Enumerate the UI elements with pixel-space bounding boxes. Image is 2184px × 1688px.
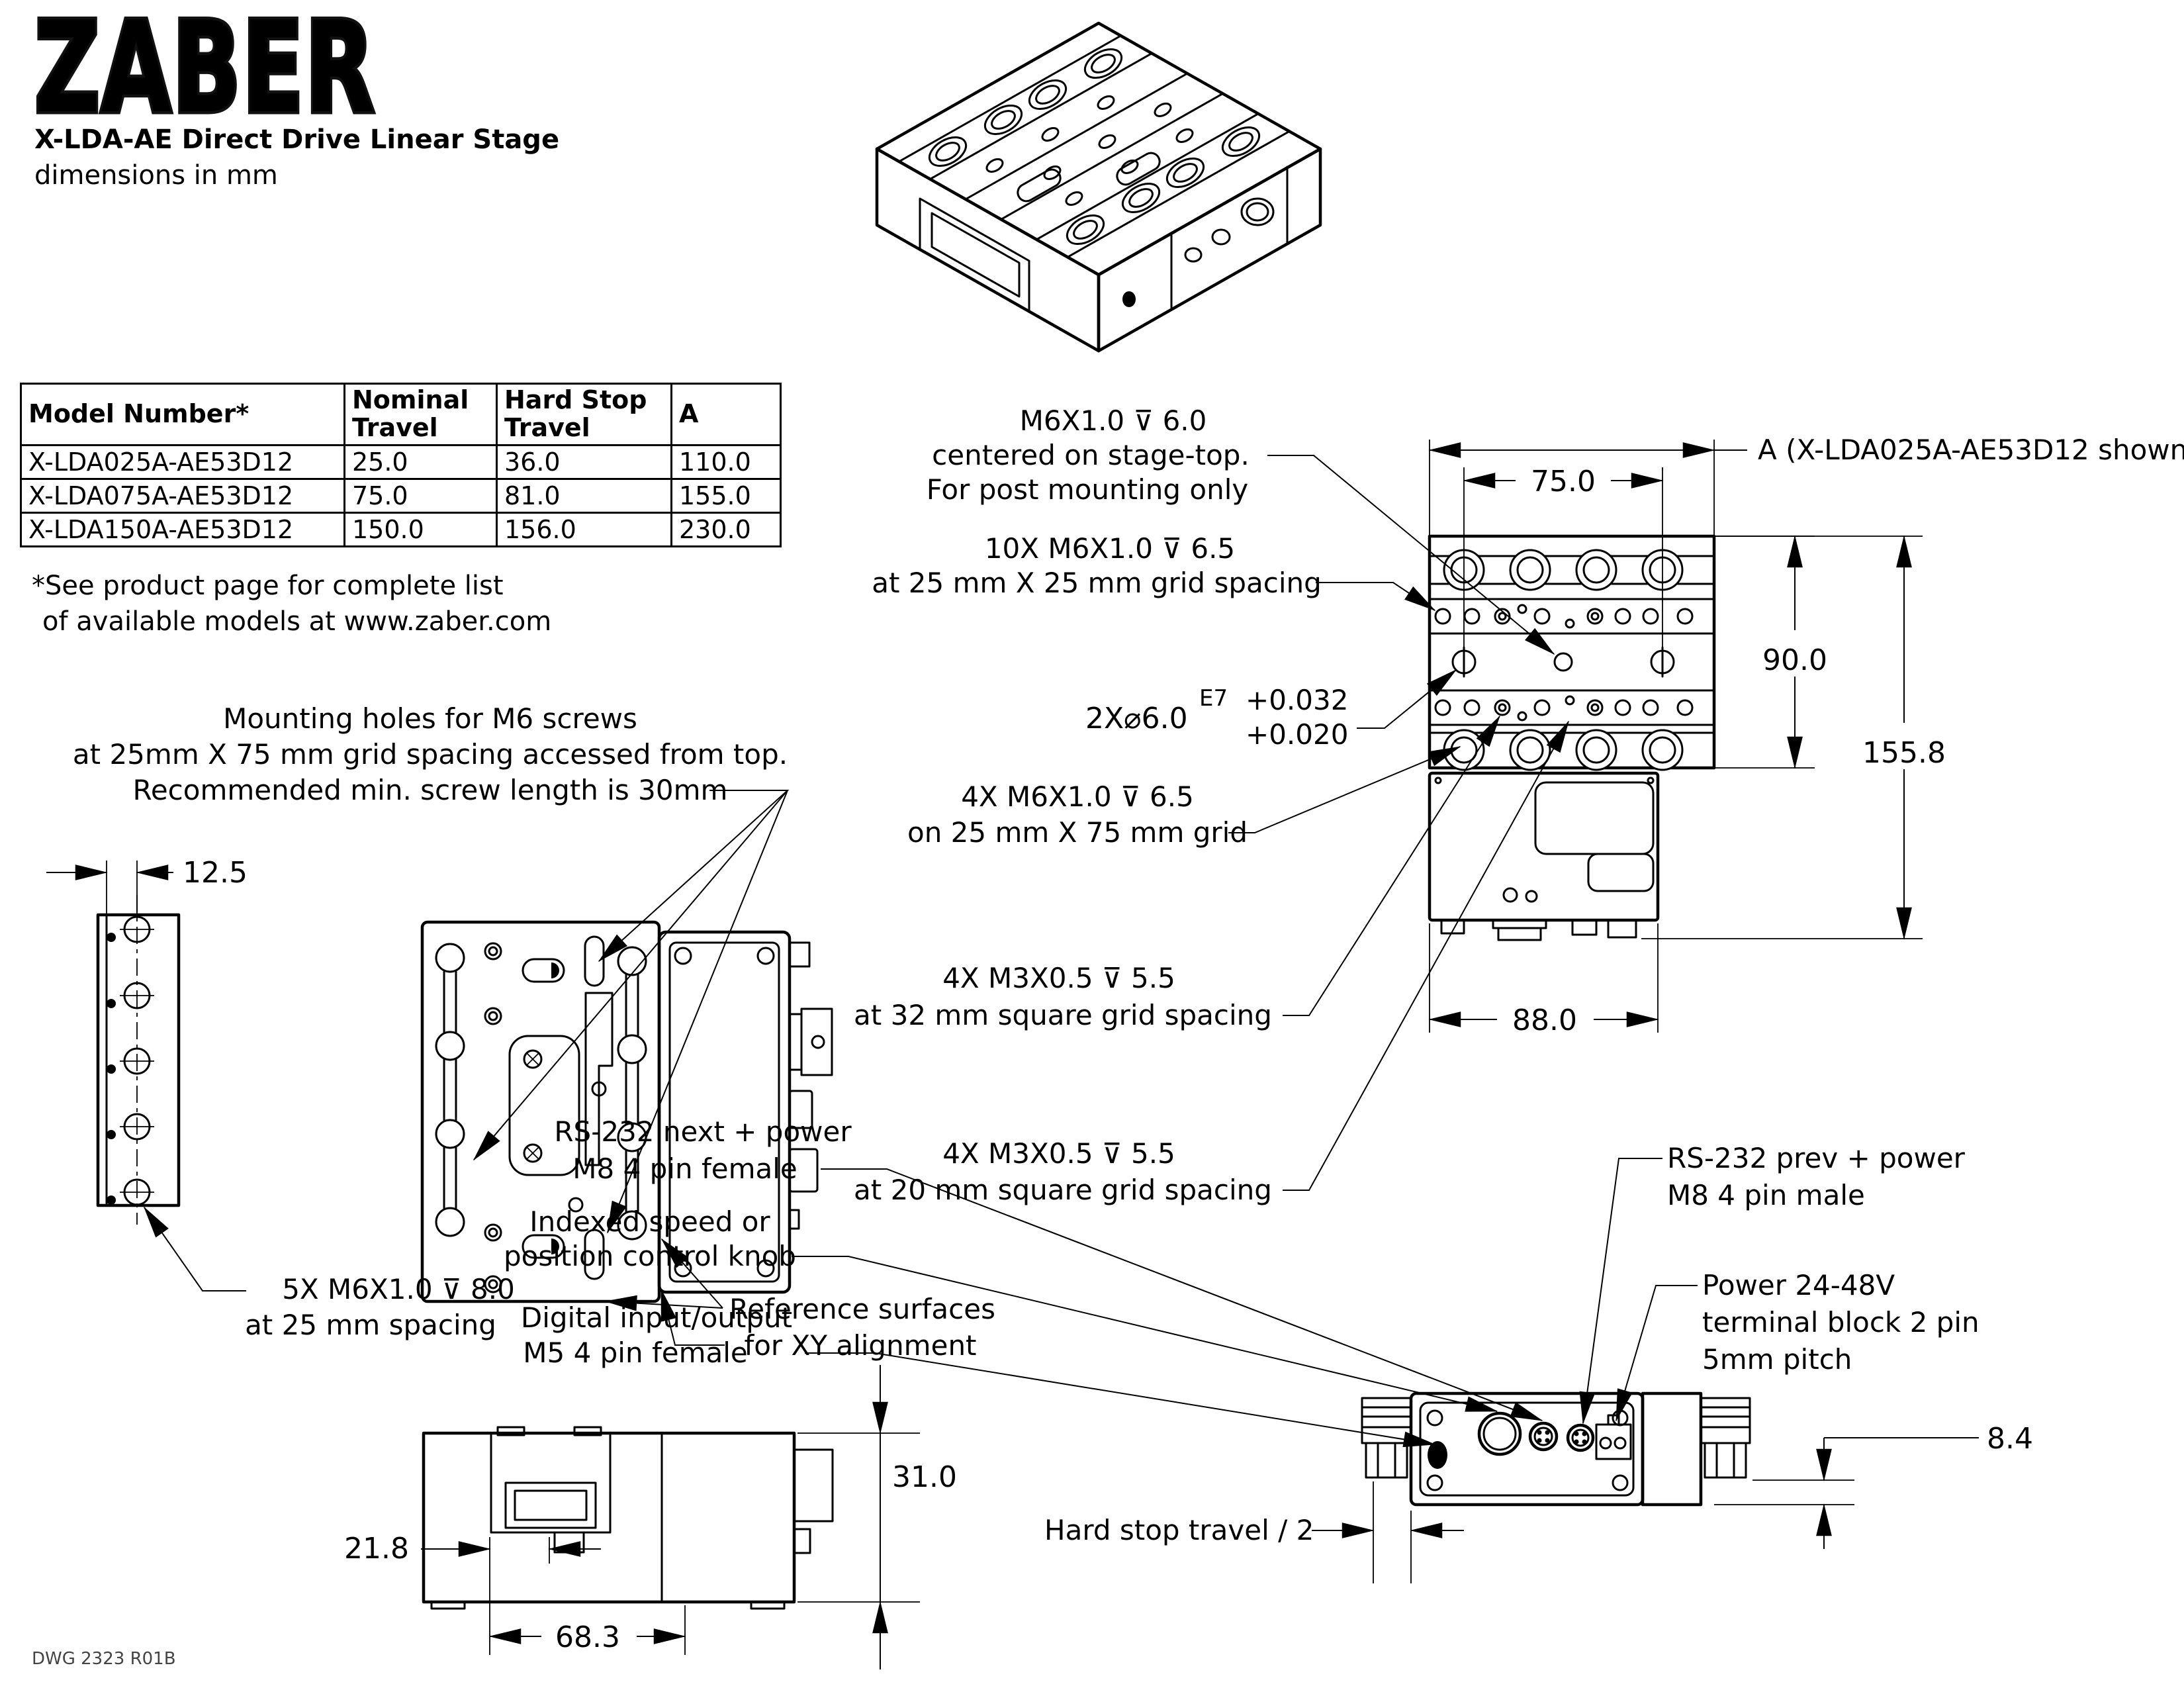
dim-683: 68.3: [490, 1605, 685, 1655]
plan-small-hole-band-top: [1435, 605, 1692, 628]
callout-grid10x-l1: 10X M6X1.0 ⊽ 6.5: [985, 532, 1235, 565]
callout-grid4x-l1: 4X M6X1.0 ⊽ 6.5: [961, 780, 1194, 813]
callout-grid4x-l2: on 25 mm X 75 mm grid: [907, 816, 1248, 849]
callout-dio-l2: M5 4 pin female: [523, 1336, 747, 1369]
callout-m3-20-l2: at 20 mm square grid spacing: [854, 1174, 1272, 1206]
controller-top-view: [659, 932, 832, 1292]
plan-counterbore-row-bottom: [1444, 730, 1682, 770]
callout-grid10x: 10X M6X1.0 ⊽ 6.5 at 25 mm X 25 mm grid s…: [872, 532, 1435, 610]
side-connector-small: [794, 1529, 810, 1553]
plan-body: [1430, 773, 1658, 940]
front-rail-left: [1362, 1398, 1411, 1477]
dim-84-label: 8.4: [1987, 1422, 2033, 1456]
brand-logo: ZABER: [34, 0, 375, 142]
dim-218-label: 21.8: [344, 1532, 409, 1566]
dim-88-label: 88.0: [1512, 1004, 1577, 1037]
callout-knob-l1: Indexed speed or: [529, 1205, 770, 1238]
side-carriage: [491, 1427, 610, 1552]
plan-dowel-row: [1453, 647, 1674, 677]
page-title: X-LDA-AE Direct Drive Linear Stage: [34, 124, 559, 155]
zaber-logo-text: ZABER: [34, 0, 375, 142]
callout-mounting-l2: at 25mm X 75 mm grid spacing accessed fr…: [73, 738, 788, 771]
dim-125: 12.5: [46, 856, 248, 920]
callout-rs232-next-l1: RS-232 next + power: [554, 1115, 852, 1148]
callout-power: Power 24-48V terminal block 2 pin 5mm pi…: [1616, 1269, 1979, 1421]
callout-dio-l1: Digital input/output: [521, 1301, 792, 1334]
dim-683-label: 68.3: [555, 1620, 620, 1654]
callout-side5x: 5X M6X1.0 ⊽ 8.0 at 25 mm spacing: [144, 1207, 515, 1341]
dim-75: 75.0: [1464, 465, 1662, 662]
dim-a-label: A (X-LDA025A-AE53D12 shown): [1758, 434, 2184, 466]
side-connector-big: [794, 1450, 833, 1521]
callout-dowel-main: 2X⌀6.0: [1085, 702, 1188, 735]
m5-dio-connector: [1428, 1441, 1447, 1469]
table-row: X-LDA150A-AE53D12150.0156.0230.0: [21, 513, 781, 547]
connector-side-1: [790, 943, 809, 966]
table-row: X-LDA025A-AE53D1225.036.0110.0: [21, 445, 781, 479]
col-a: A: [672, 384, 781, 445]
dim-90-label: 90.0: [1762, 643, 1827, 677]
model-table: Model Number* Nominal Travel Hard Stop T…: [20, 383, 782, 547]
callout-grid4x: 4X M6X1.0 ⊽ 6.5 on 25 mm X 75 mm grid: [907, 747, 1460, 849]
model-table-body: X-LDA025A-AE53D1225.036.0110.0X-LDA075A-…: [21, 445, 781, 547]
front-rail-right: [1701, 1398, 1750, 1477]
dim-310-label: 31.0: [892, 1460, 957, 1494]
table-row: X-LDA075A-AE53D1275.081.0155.0: [21, 479, 781, 513]
side-profile-view: 21.8 68.3 31.0: [344, 1365, 957, 1669]
table-footnote-1: *See product page for complete list: [32, 571, 504, 601]
dwg-number: DWG 2323 R01B: [32, 1649, 176, 1669]
callout-power-l3: 5mm pitch: [1702, 1343, 1852, 1376]
side-foot: [751, 1602, 784, 1609]
dim-hardstop: Hard stop travel / 2: [1044, 1481, 1464, 1583]
dim-155: 155.8: [1641, 536, 1946, 939]
callout-dowel: 2X⌀6.0 E7 +0.032 +0.020: [1085, 670, 1456, 751]
front-view: [1362, 1393, 1750, 1505]
callout-m3-20-l1: 4X M3X0.5 ⊽ 5.5: [942, 1137, 1175, 1170]
dim-84: 8.4: [1714, 1422, 2033, 1549]
connector-side-knob: [790, 1009, 832, 1075]
callout-reference-l2: for XY alignment: [744, 1329, 976, 1362]
callout-rs232-prev-l1: RS-232 prev + power: [1667, 1142, 1966, 1174]
stage-left-slot-chain: [436, 944, 464, 1236]
callout-rs232-prev-l2: M8 4 pin male: [1667, 1179, 1865, 1211]
page-subtitle: dimensions in mm: [34, 160, 278, 191]
col-model-number: Model Number*: [21, 384, 345, 445]
col-hardstop-travel: Hard Stop Travel: [497, 384, 672, 445]
callout-dowel-sup: E7: [1199, 685, 1228, 712]
callout-power-l1: Power 24-48V: [1702, 1269, 1895, 1301]
isometric-view: [877, 23, 1320, 351]
callout-m3-32-l2: at 32 mm square grid spacing: [854, 999, 1272, 1031]
dim-310: 31.0: [797, 1365, 957, 1669]
side-plate-holes: [107, 917, 154, 1205]
callout-m3-32-l1: 4X M3X0.5 ⊽ 5.5: [942, 962, 1175, 994]
callout-knob-l2: position control knob: [504, 1240, 796, 1272]
dim-75-label: 75.0: [1531, 465, 1596, 498]
datasheet-page: Model Number* Nominal Travel Hard Stop T…: [0, 0, 2184, 1688]
stage-slot-top: [585, 937, 604, 986]
col-nominal-travel: Nominal Travel: [345, 384, 497, 445]
callout-m3-32: 4X M3X0.5 ⊽ 5.5 at 32 mm square grid spa…: [854, 716, 1500, 1031]
dim-90: 90.0: [1714, 536, 1827, 768]
callout-post-mount-l2: centered on stage-top.: [932, 439, 1250, 471]
table-footnote-2: of available models at www.zaber.com: [42, 606, 551, 637]
callout-grid10x-l2: at 25 mm X 25 mm grid spacing: [872, 567, 1322, 599]
callout-post-mount-l1: M6X1.0 ⊽ 6.0: [1020, 404, 1207, 437]
callout-power-l2: terminal block 2 pin: [1702, 1306, 1979, 1338]
callout-mounting-l3: Recommended min. screw length is 30mm: [133, 774, 728, 806]
technical-drawing: ZABER X-LDA-AE Direct Drive Linear Stage…: [0, 0, 2184, 1688]
hardstop-label: Hard stop travel / 2: [1044, 1514, 1314, 1546]
callout-mounting-l1: Mounting holes for M6 screws: [223, 702, 637, 735]
callout-dowel-tol-upper: +0.032: [1246, 684, 1348, 716]
callout-post-mount-l3: For post mounting only: [927, 473, 1249, 506]
plan-small-hole-band-bottom: [1435, 696, 1692, 720]
stage-ring-holes: [485, 943, 501, 1292]
side-plate-view: 12.5: [46, 856, 248, 1225]
iso-counterbore-holes: [925, 44, 1264, 250]
iso-left-face-pocket: [920, 199, 1029, 311]
dim-155-label: 155.8: [1862, 736, 1946, 770]
callout-dowel-tol-lower: +0.020: [1246, 718, 1348, 751]
callout-rs232-next-l2: M8 4 pin female: [572, 1152, 797, 1185]
model-table-head: Model Number* Nominal Travel Hard Stop T…: [21, 384, 781, 445]
side-foot: [432, 1602, 465, 1609]
dim-125-label: 12.5: [183, 856, 248, 890]
callout-side5x-l2: at 25 mm spacing: [245, 1309, 496, 1341]
plan-view: 75.0 A (X-LDA025A-AE53D12 shown) 90.0 15…: [1430, 434, 2184, 1037]
callout-post-mount: M6X1.0 ⊽ 6.0 centered on stage-top. For …: [927, 404, 1554, 654]
dim-88: 88.0: [1430, 923, 1658, 1037]
